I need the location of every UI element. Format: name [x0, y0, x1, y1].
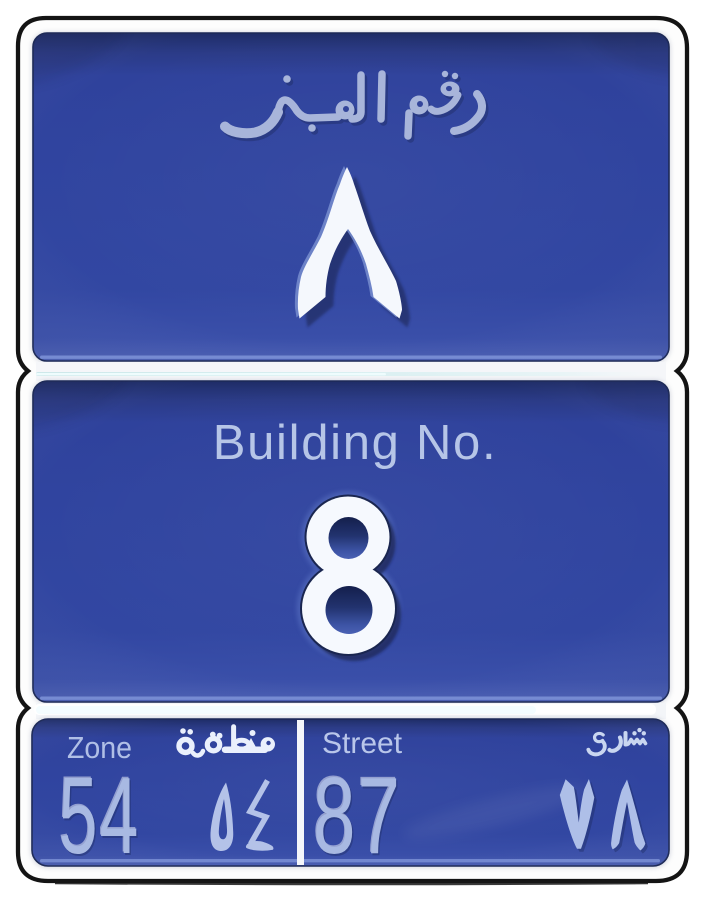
- svg-text:54: 54: [59, 755, 140, 876]
- svg-text:87: 87: [313, 755, 402, 877]
- svg-text:Building No.: Building No.: [213, 416, 498, 470]
